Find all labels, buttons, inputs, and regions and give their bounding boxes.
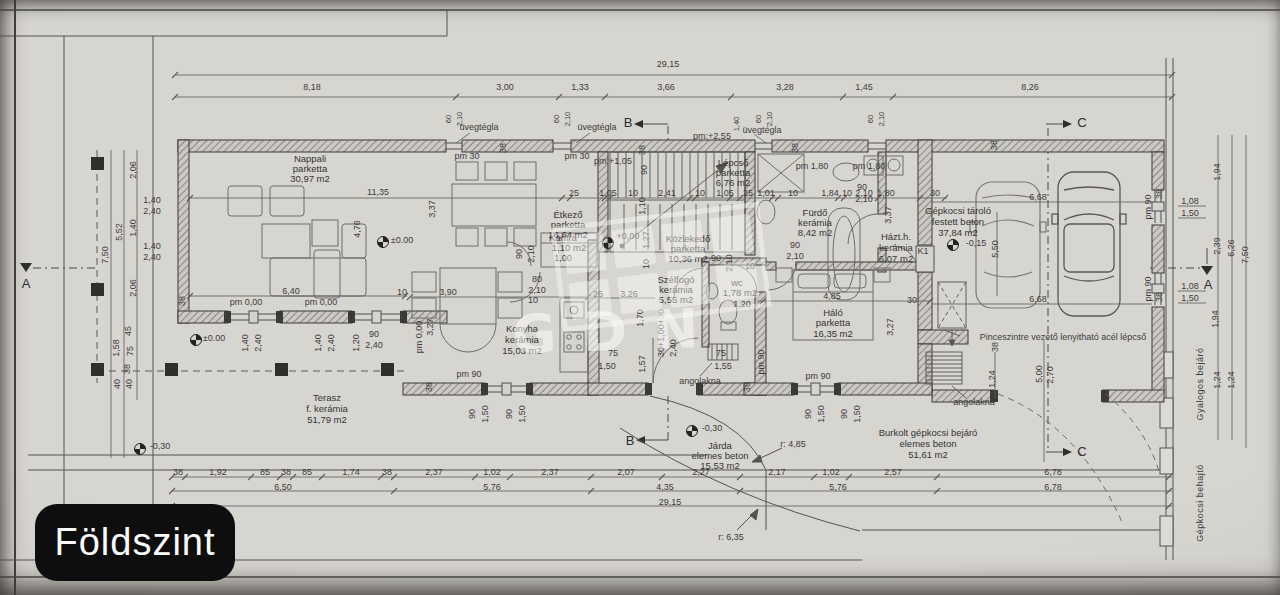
dim-label: 4,76 <box>353 220 362 238</box>
dim-label: 8,18 <box>303 83 321 92</box>
dim-label: 2,10 <box>786 252 804 261</box>
dim-label: 1,24 <box>1227 371 1236 389</box>
watermark-logo-cell <box>563 232 608 274</box>
dim-label: 1,50 <box>518 405 527 423</box>
watermark-logo-cell <box>709 214 754 256</box>
dim-label: 38 <box>499 143 508 153</box>
level-label: -0,30 <box>702 424 723 433</box>
dim-label: 38 <box>638 145 647 155</box>
dim-label: 2,10 <box>527 245 536 263</box>
dim-label: 10 <box>788 189 798 198</box>
level-label: -0,30 <box>150 442 171 451</box>
level-label: pm 90 <box>1144 276 1153 301</box>
level-label: pm 30 <box>454 152 479 161</box>
room-area: 51,79 m2 <box>307 415 347 425</box>
dim-label: 1,94 <box>1211 310 1220 328</box>
level-label: pm:+1,05 <box>594 157 632 166</box>
dim-label: 2,37 <box>425 468 443 477</box>
dim-label: 60 <box>445 115 453 123</box>
room-area: 30,97 m2 <box>290 174 330 184</box>
dim-label: 90 <box>857 183 867 192</box>
dim-label: 2,40 <box>143 253 161 262</box>
dim-label: 80 <box>532 275 542 284</box>
dim-label: 90 <box>840 409 849 419</box>
dim-label: 2,57 <box>884 468 902 477</box>
dim-label: 90 <box>804 409 813 419</box>
dim-label: 3,27 <box>886 318 895 336</box>
dim-label: 1,50 <box>853 405 862 423</box>
glass-brick-label: üvegtégla <box>459 123 498 132</box>
dim-label: 2,10 <box>855 195 873 204</box>
dim-label: 38 <box>990 140 999 150</box>
level-label: pm 90 <box>757 349 766 374</box>
watermark-text: GDN <box>511 296 725 366</box>
dim-label: 3,00 <box>496 83 514 92</box>
dim-label: 30 <box>930 189 940 198</box>
dim-label: 1,40 <box>241 334 250 352</box>
dim-label: 38 <box>743 382 752 392</box>
dim-label: 90 <box>369 330 379 339</box>
dim-label: 1,02 <box>483 468 501 477</box>
dim-label: 3,27 <box>426 318 435 336</box>
dim-label: 1,50 <box>1181 294 1199 303</box>
dim-label: 2,10 <box>528 286 546 295</box>
room-material: festett beton <box>932 217 984 227</box>
dim-label: 29,15 <box>659 498 682 507</box>
room-area: 37,84 m2 <box>938 228 978 238</box>
dim-label: 2,40 <box>365 341 383 350</box>
dim-label: 4,35 <box>656 483 674 492</box>
dim-label: 6,26 <box>1227 239 1236 257</box>
watermark-crescent-small <box>160 322 178 358</box>
dim-label: 38 <box>123 364 132 374</box>
room-area: 6,76 m2 <box>716 178 750 188</box>
dim-label: 2,06 <box>129 161 138 179</box>
dim-label: 11,35 <box>367 188 389 197</box>
dim-label: 38 <box>382 468 392 477</box>
dim-label: 1,40 <box>129 219 138 237</box>
dim-label: 5,76 <box>829 483 847 492</box>
dim-label: 1,05 <box>599 189 617 198</box>
room-material: elemes beton <box>899 439 956 449</box>
dim-label: 2,10 <box>564 112 572 127</box>
dim-label: 6,78 <box>1044 483 1062 492</box>
dim-label: 5,00 <box>1035 365 1044 383</box>
dim-label: 1,24 <box>988 370 997 388</box>
dim-label: 2,27 <box>692 468 710 477</box>
room-area: 16,35 m2 <box>813 329 853 339</box>
level-label: pm 90 <box>1144 194 1153 219</box>
dim-label: 10 <box>842 189 852 198</box>
dim-label: 1,40 <box>143 242 161 251</box>
room-material: f. kerámia <box>306 404 348 414</box>
dim-label: 1,45 <box>855 83 873 92</box>
car-right <box>1052 172 1126 316</box>
pedestrian-entry-label: Gyalogos bejáró <box>1196 347 1205 420</box>
light-well-label: angolakna <box>953 398 995 407</box>
dim-label: 1,33 <box>571 83 589 92</box>
radius-label: r: 4,85 <box>780 440 806 449</box>
level-label: pm 1,80 <box>853 162 886 171</box>
dim-label: 90 <box>468 409 477 419</box>
dim-label: 45 <box>124 326 133 336</box>
room-name: Házt.h. <box>881 232 911 242</box>
dim-label: 25 <box>569 189 579 198</box>
basement-stair-note: Pinceszintre vezető lenyitható acél lépc… <box>980 333 1147 342</box>
dim-label: 38 <box>173 468 183 477</box>
level-label: pm 30 <box>564 152 589 161</box>
dim-label: 2,07 <box>617 468 635 477</box>
floor-plan-page: 29,15 8,18 3,00 1,33 3,66 3,28 1,45 8,26… <box>0 0 1280 595</box>
level-label: pm 90 <box>456 370 481 379</box>
dim-label: 30 <box>907 296 917 305</box>
dim-label: 1,20 <box>352 334 361 352</box>
dim-label: 2,10 <box>766 112 774 127</box>
level-label: pm 0,00 <box>415 321 424 354</box>
dim-label: 38 <box>281 468 291 477</box>
dim-label: 6,50 <box>274 483 292 492</box>
dim-label: 6,40 <box>282 287 300 296</box>
dim-label: 7,50 <box>101 246 110 264</box>
room-name: Gépkocsi tároló <box>925 206 991 216</box>
room-area: 8,42 m2 <box>798 228 832 238</box>
dim-label: 1,92 <box>209 468 227 477</box>
dim-label: 1,55 <box>714 362 732 371</box>
room-name: Terasz <box>313 393 341 403</box>
section-marker-a: A <box>22 277 31 290</box>
dim-label: 60 <box>755 115 763 123</box>
floor-label-badge: Földszint <box>35 504 235 581</box>
dim-label: 1,40 <box>733 117 741 132</box>
dim-label: 10 <box>397 288 407 297</box>
dim-label: 2,41 <box>658 189 676 198</box>
car-entry-label: Gépkocsi behajtó <box>1196 464 1205 542</box>
dim-label: 85 <box>302 468 312 477</box>
level-label: pm 1,80 <box>796 162 829 171</box>
level-label: pm 0,00 <box>230 298 263 307</box>
glass-brick-label: üvegtégla <box>742 126 781 135</box>
dim-label: 90 <box>790 241 800 250</box>
door-code-label: K1 <box>917 247 928 256</box>
dim-label: 10 <box>628 189 638 198</box>
floor-label: Földszint <box>54 521 215 564</box>
dim-label: 5,76 <box>483 483 501 492</box>
dim-label: 6,78 <box>1044 468 1062 477</box>
dim-label: 38 <box>425 382 434 392</box>
dim-label: 40 <box>113 379 122 389</box>
dim-label: 2,10 <box>878 112 886 127</box>
dim-label: 1,40 <box>314 334 323 352</box>
dim-label: 1,08 <box>1181 282 1199 291</box>
dim-label: 2,40 <box>327 334 336 352</box>
dim-label: 85 <box>260 468 270 477</box>
dim-label: 90 <box>640 165 649 175</box>
dim-label: 90 <box>515 249 524 259</box>
level-label: pm 90 <box>805 372 830 381</box>
dim-label: 1,10 <box>638 197 647 215</box>
dim-label: 5,52 <box>115 223 124 241</box>
level-label: ±0.00 <box>203 334 225 343</box>
dim-label: 1,08 <box>1181 197 1199 206</box>
level-label: ±0.00 <box>391 236 413 245</box>
dim-label: 3,37 <box>884 206 893 224</box>
section-marker-b: B <box>624 116 633 129</box>
dim-label: 1,74 <box>342 468 360 477</box>
level-label: pm 0,00 <box>305 298 338 307</box>
room-material: kerámia <box>879 243 913 253</box>
dim-label: 1,50 <box>481 405 490 423</box>
radius-label: r: 6,35 <box>718 533 744 542</box>
dim-label: 1,02 <box>822 468 840 477</box>
dim-label: 6,68 <box>1029 295 1047 304</box>
light-well-label: angolakna <box>679 377 721 386</box>
dim-label: 90 <box>505 409 514 419</box>
section-marker-a: A <box>1204 278 1213 291</box>
level-label: pm:+2,55 <box>693 132 731 141</box>
dim-label: 1,01 <box>757 189 775 198</box>
dim-label: 2,40 <box>143 207 161 216</box>
room-area: 51,61 m2 <box>908 450 948 460</box>
dim-label: 29,15 <box>657 60 680 69</box>
section-marker-c: C <box>1077 116 1086 129</box>
dim-label: 2,06 <box>129 279 138 297</box>
section-marker-b: B <box>626 434 635 447</box>
dim-label: 40 <box>125 379 134 389</box>
section-marker-c: C <box>1077 445 1086 458</box>
dim-label: 1,94 <box>1213 163 1222 181</box>
dim-label: 60 <box>553 115 561 123</box>
dim-label: 2,37 <box>541 468 559 477</box>
dim-label: 75 <box>126 346 135 356</box>
dim-label: 3,28 <box>776 83 794 92</box>
room-area: 6,07 m2 <box>879 254 913 264</box>
dim-label: 38 <box>791 143 800 153</box>
dim-label: 38 <box>991 342 1000 352</box>
dim-label: 1,84 <box>821 189 839 198</box>
dim-label: 7,50 <box>1241 246 1250 264</box>
room-name: Burkolt gépkocsi bejáró <box>879 428 978 438</box>
dim-label: 2,17 <box>768 468 786 477</box>
dim-label: 1,05 <box>716 189 734 198</box>
dim-label: 2,70 <box>1046 366 1055 384</box>
watermark-logo-cell <box>660 220 705 262</box>
dim-label: 1,58 <box>112 339 121 357</box>
dim-label: 1,40 <box>143 196 161 205</box>
dim-label: 3,37 <box>428 200 437 218</box>
dim-label: 6,68 <box>1029 193 1047 202</box>
dim-label: 25 <box>743 189 753 198</box>
room-material: parketta <box>816 318 850 328</box>
glass-brick-label: üvegtégla <box>577 123 616 132</box>
dim-label: 8,26 <box>1021 83 1039 92</box>
dim-label: 1,80 <box>877 189 895 198</box>
level-label: -0,15 <box>966 239 987 248</box>
dim-label: 38 <box>1155 292 1164 302</box>
dim-label: 1,50 <box>817 405 826 423</box>
dim-label: 10 <box>695 189 705 198</box>
dim-label: 3,90 <box>439 288 457 297</box>
dim-label: 2,39 <box>1213 237 1222 255</box>
dim-label: 38 <box>178 296 187 306</box>
dim-label: 5,50 <box>991 240 1000 258</box>
watermark-logo-cell <box>611 226 656 268</box>
dim-label: 60 <box>867 115 875 123</box>
dim-label: 1,24 <box>1213 371 1222 389</box>
dim-label: 38 <box>1155 189 1164 199</box>
dim-label: 2,40 <box>254 334 263 352</box>
dim-label: 2,10 <box>456 112 464 127</box>
dim-label: 4,85 <box>823 292 841 301</box>
dim-label: 3,66 <box>657 83 675 92</box>
dim-label: 1,50 <box>1181 209 1199 218</box>
